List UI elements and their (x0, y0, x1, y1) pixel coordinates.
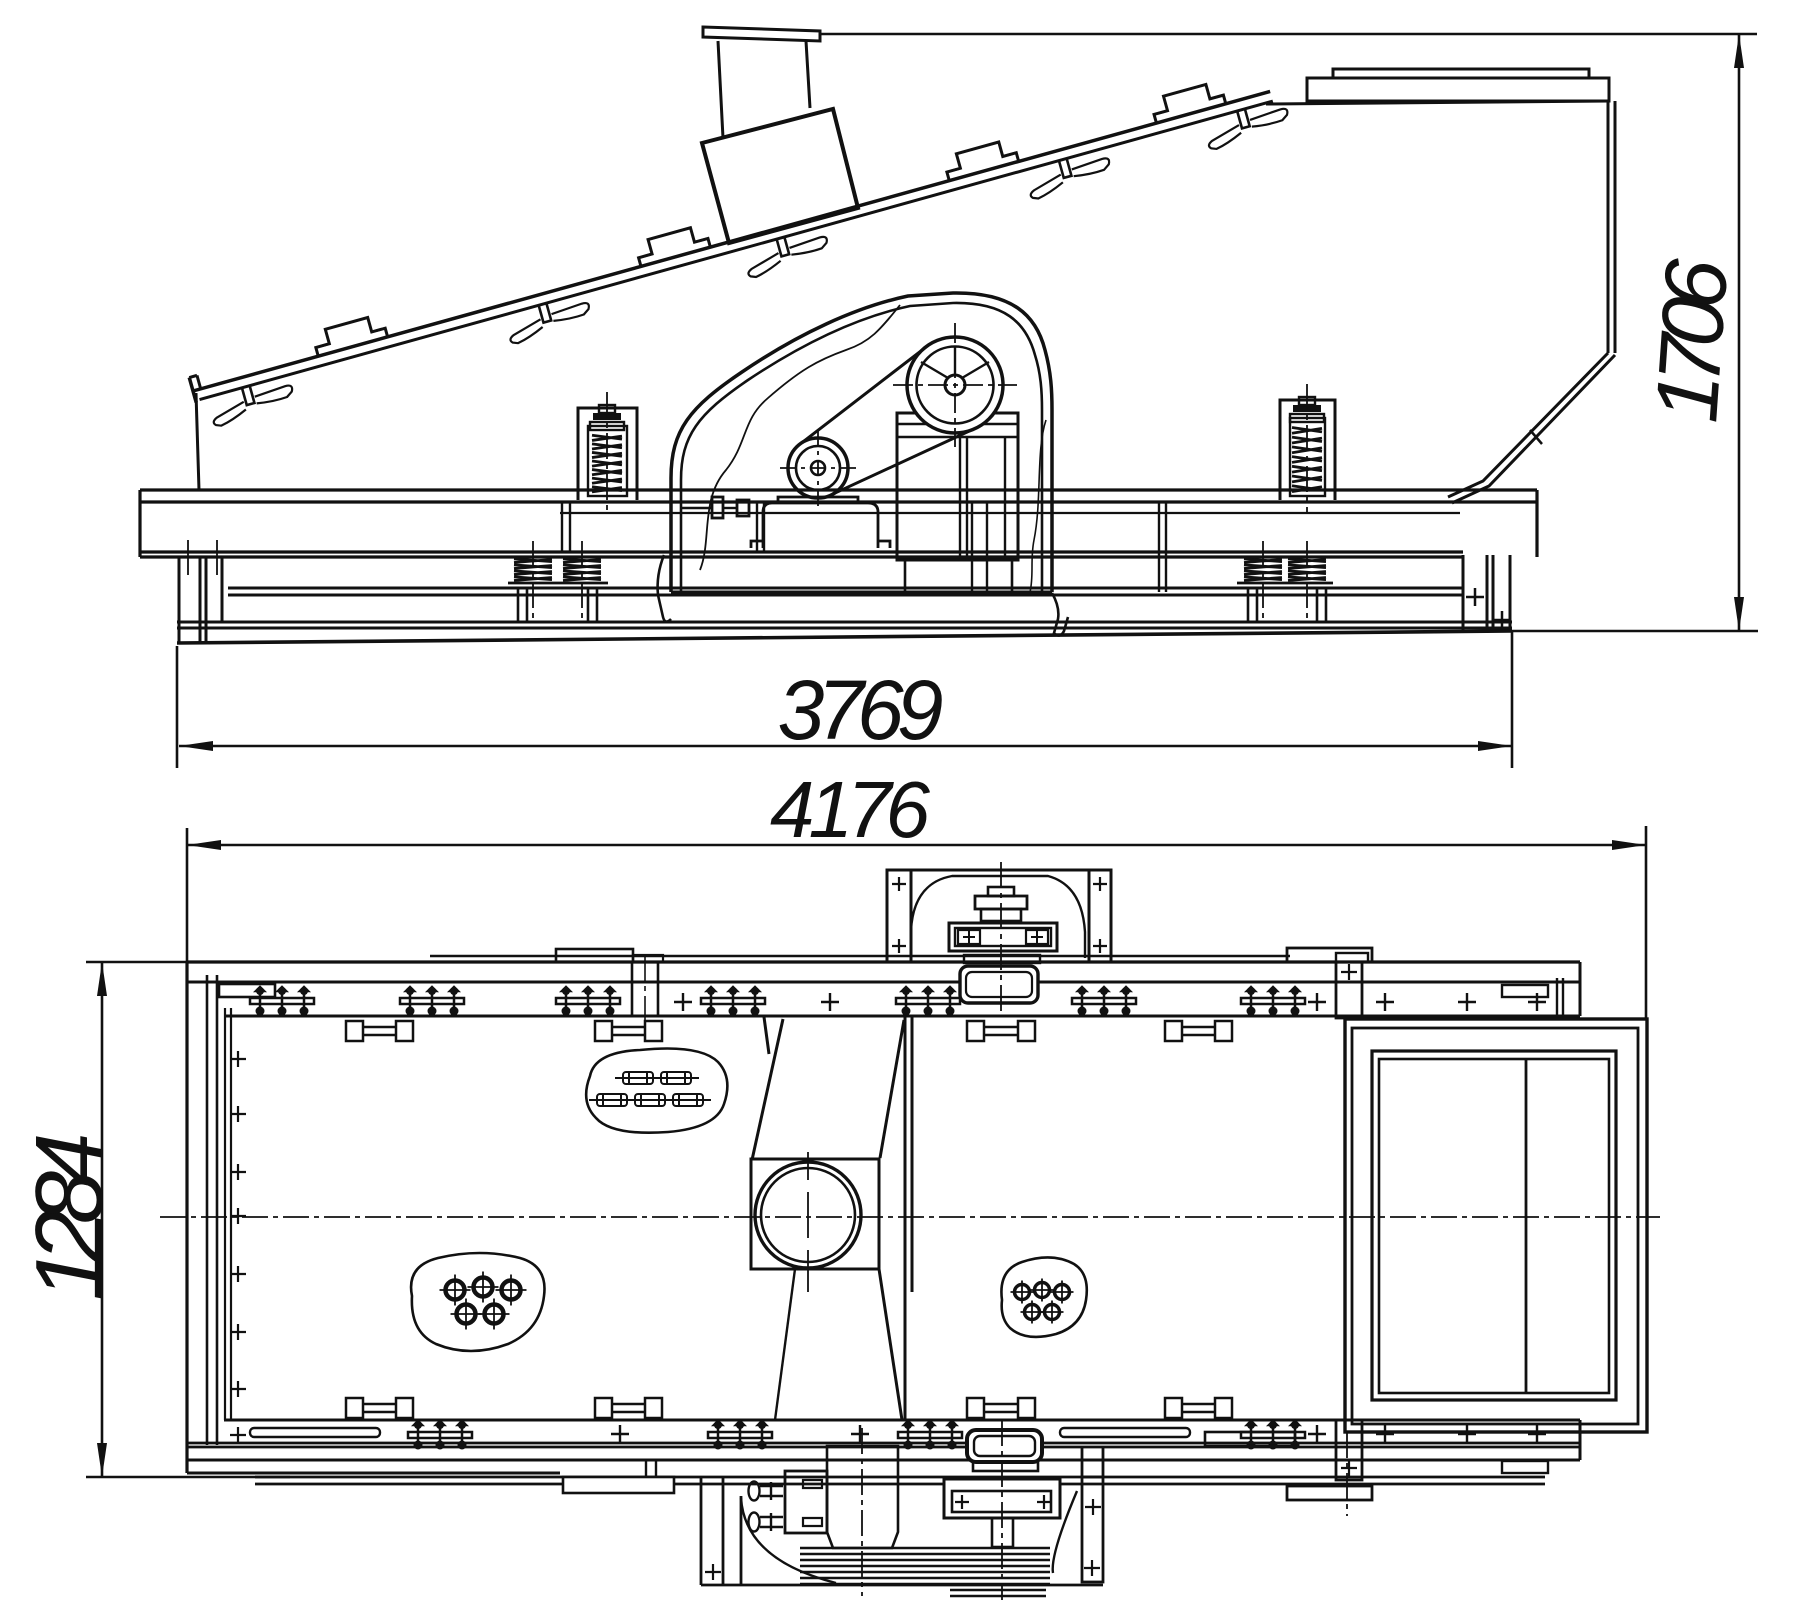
svg-text:1284: 1284 (16, 1136, 123, 1301)
svg-text:1706: 1706 (1636, 256, 1746, 425)
svg-text:4176: 4176 (770, 765, 930, 854)
svg-text:3769: 3769 (778, 663, 942, 757)
